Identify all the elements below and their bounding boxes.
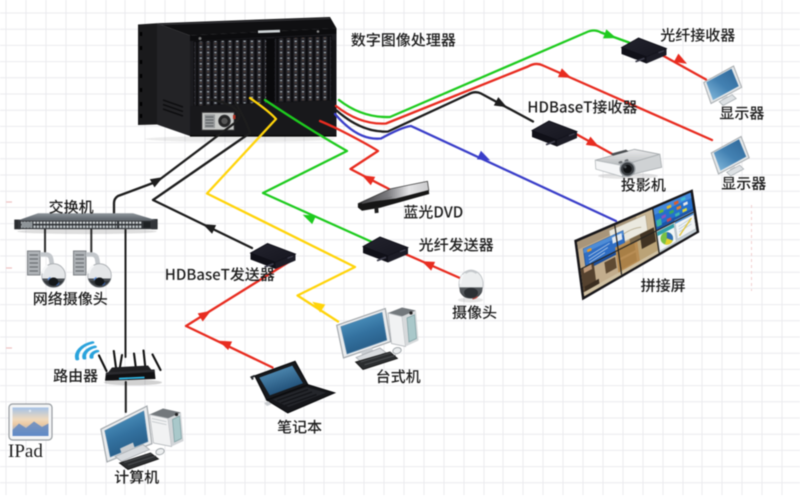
svg-text:IPad: IPad xyxy=(8,441,43,462)
